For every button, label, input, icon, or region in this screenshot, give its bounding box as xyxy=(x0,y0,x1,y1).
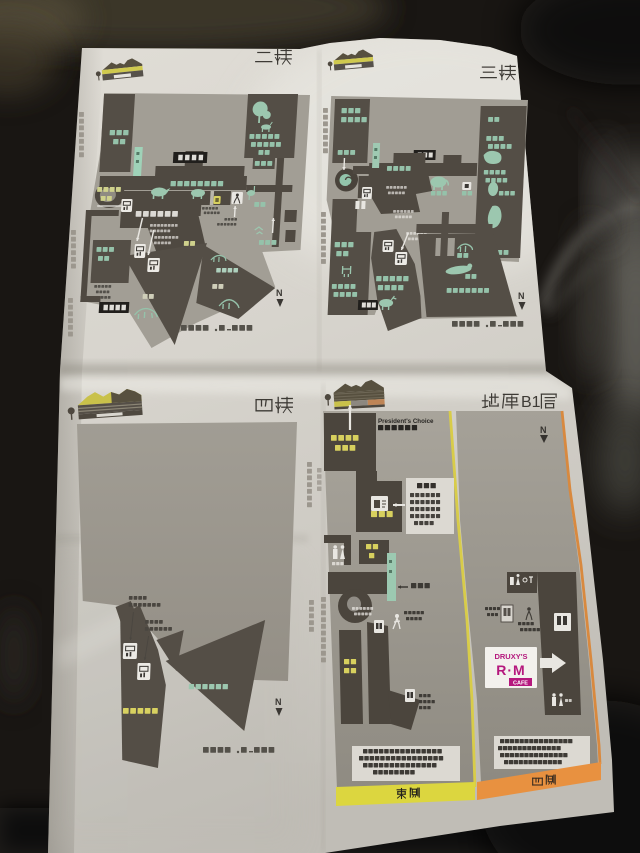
svg-text:N: N xyxy=(518,291,525,301)
svg-text:DRUXY'S: DRUXY'S xyxy=(494,652,527,661)
svg-text:CAFE: CAFE xyxy=(513,681,528,687)
svg-text:N: N xyxy=(276,288,283,298)
svg-text:R·M: R·M xyxy=(496,662,525,678)
svg-text:N: N xyxy=(275,697,282,707)
svg-text:B1: B1 xyxy=(521,394,541,411)
svg-text:N: N xyxy=(540,425,547,435)
svg-text:President's Choice: President's Choice xyxy=(378,418,434,425)
